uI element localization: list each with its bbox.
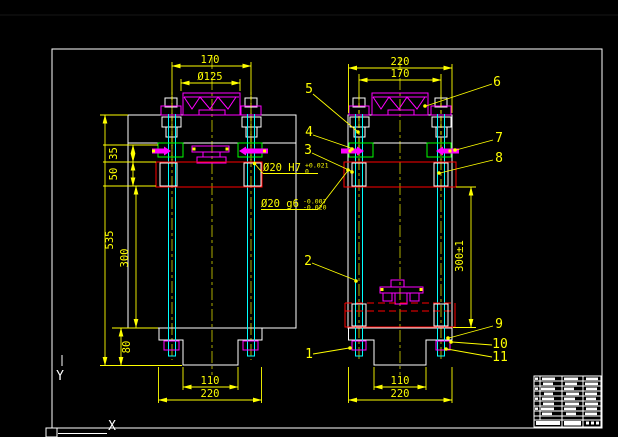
dim-left-total: 535 [104, 231, 116, 250]
dim-right-top-width: 220 [391, 56, 410, 68]
callout-post-fit: Ø20 g6 [261, 198, 299, 210]
ucs-icon: Y X [46, 355, 116, 437]
dim-right-base-width: 220 [391, 388, 410, 400]
dim-left-top-width: 170 [201, 54, 220, 66]
balloon-2: 2 [304, 254, 312, 269]
right-view [341, 57, 459, 375]
dim-right-closed-height: 300±1 [454, 240, 466, 272]
cad-canvas[interactable]: 170 Ø125 35 50 300 535 80 110 220 [0, 0, 618, 437]
callout-bushing-fit: Ø20 H7 [263, 162, 301, 174]
title-block [534, 376, 601, 427]
balloon-1: 1 [305, 347, 313, 362]
left-view [128, 57, 296, 375]
ucs-x-label: X [108, 419, 116, 434]
ucs-y-label: Y [56, 369, 64, 384]
dim-right-base-slot: 110 [391, 375, 410, 387]
callout-bushing-tol-lower: 0 [305, 168, 309, 176]
balloons: 1 2 3 4 5 6 7 8 9 10 11 [304, 75, 508, 365]
dim-left-base-height: 80 [121, 341, 133, 354]
dim-left-plate: 35 [108, 147, 120, 160]
dim-left-base-slot: 110 [201, 375, 220, 387]
balloon-9: 9 [495, 317, 503, 332]
balloon-4: 4 [305, 125, 313, 140]
balloon-3: 3 [304, 143, 312, 158]
balloon-8: 8 [495, 151, 503, 166]
fit-callouts: Ø20 H7 +0.021 0 Ø20 g6 -0.007 -0.020 [253, 162, 350, 212]
callout-post-tol-lower: -0.020 [303, 204, 327, 212]
dim-right-bolt-span: 170 [391, 68, 410, 80]
balloon-11: 11 [492, 350, 508, 365]
dim-left-holder: 50 [108, 168, 120, 181]
dim-left-base-width: 220 [201, 388, 220, 400]
dim-left-shank-dia: Ø125 [197, 71, 222, 83]
dim-left-column: 300 [119, 249, 131, 268]
balloon-7: 7 [495, 131, 503, 146]
balloon-5: 5 [305, 82, 313, 97]
balloon-6: 6 [493, 75, 501, 90]
